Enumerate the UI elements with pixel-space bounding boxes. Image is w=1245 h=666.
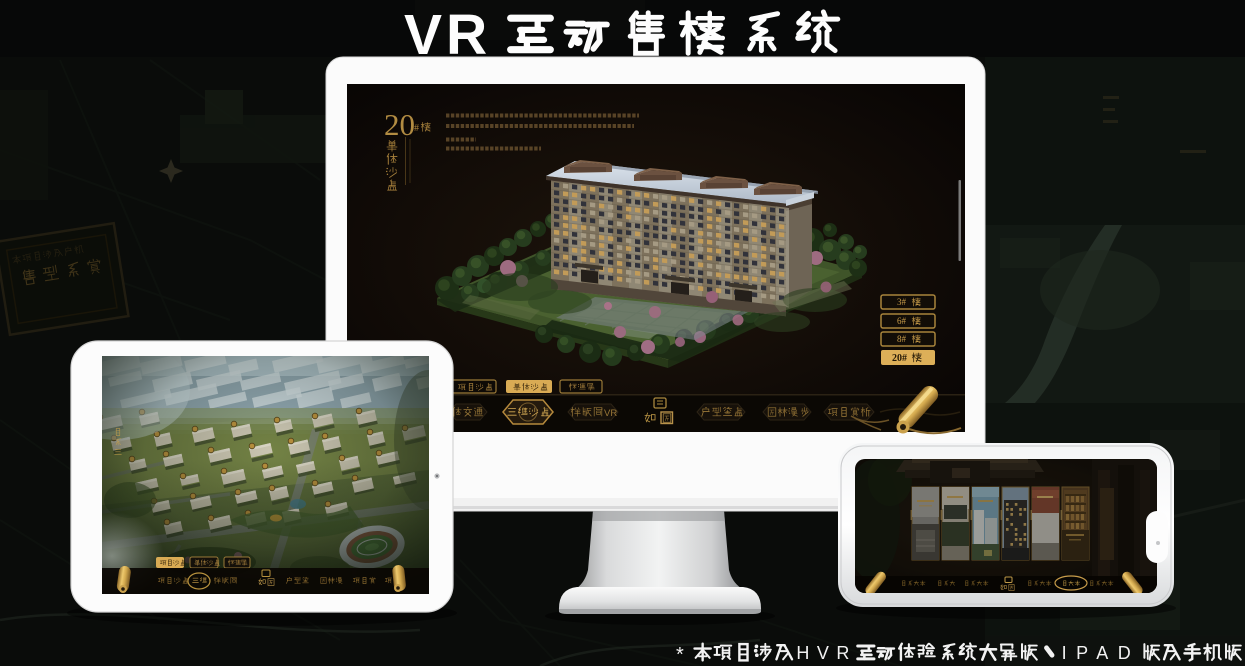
svg-text:20: 20 xyxy=(384,107,415,142)
svg-text:20#: 20# xyxy=(892,353,907,364)
svg-text:#: # xyxy=(414,123,419,134)
svg-text:3#: 3# xyxy=(897,297,907,307)
svg-text:8#: 8# xyxy=(897,334,907,344)
svg-text:*: * xyxy=(676,644,684,666)
svg-text:HVR: HVR xyxy=(796,643,857,663)
svg-text:VR: VR xyxy=(604,408,617,419)
svg-text:6#: 6# xyxy=(897,316,907,326)
svg-text:IPAD: IPAD xyxy=(1062,643,1141,663)
